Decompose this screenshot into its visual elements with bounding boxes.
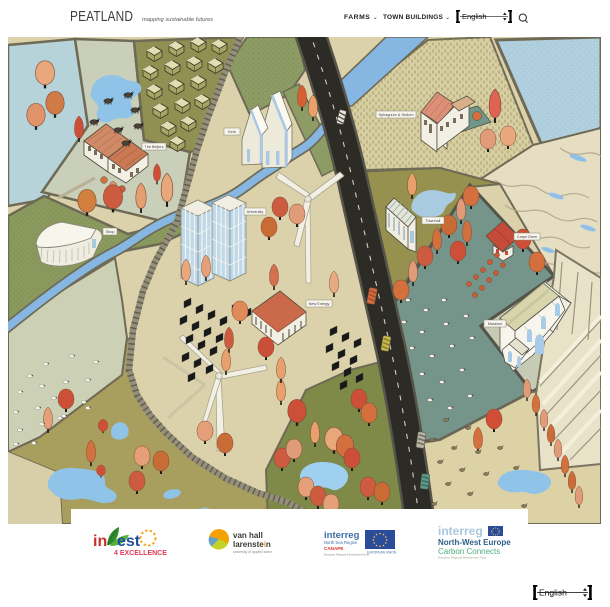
svg-text:EUROPEAN UNION: EUROPEAN UNION <box>367 551 397 555</box>
svg-text:Carpe Diem: Carpe Diem <box>517 235 537 239</box>
svg-text:The Beljers: The Beljers <box>144 145 163 149</box>
svg-text:North-West Europe: North-West Europe <box>438 538 511 547</box>
svg-text:larenstein: larenstein <box>233 540 271 549</box>
svg-text:CANAPE: CANAPE <box>324 546 343 551</box>
svg-text:interreg: interreg <box>438 524 483 538</box>
svg-text:European Regional Development: European Regional Development Fund <box>324 553 369 557</box>
svg-text:in: in <box>93 533 107 550</box>
svg-text:English: English <box>539 588 567 598</box>
svg-text:est: est <box>117 533 141 550</box>
svg-text:New Energy: New Energy <box>309 302 330 306</box>
svg-text:Shop: Shop <box>106 230 115 234</box>
svg-text:4 EXCELLENCE: 4 EXCELLENCE <box>114 550 167 557</box>
svg-text:University: University <box>247 210 264 214</box>
svg-text:European Regional Development: European Regional Development Fund <box>438 556 487 560</box>
svg-text:university of applied sciences: university of applied sciences <box>233 550 272 554</box>
svg-text:English: English <box>462 12 487 21</box>
svg-text:Sphagnum & Sedum: Sphagnum & Sedum <box>378 113 413 117</box>
svg-text:Museum: Museum <box>488 322 503 326</box>
svg-text:Kerk: Kerk <box>228 130 236 134</box>
svg-text:North Sea Region: North Sea Region <box>324 540 358 545</box>
svg-text:van hall: van hall <box>233 531 263 540</box>
svg-text:Townhall: Townhall <box>426 219 441 223</box>
